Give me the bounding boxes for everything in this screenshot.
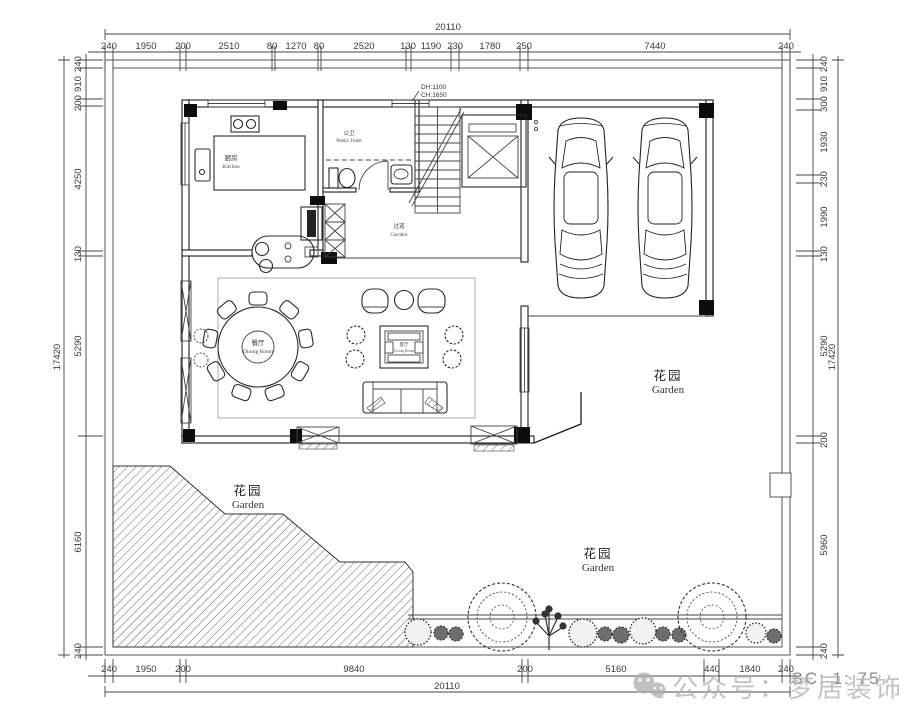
watermark: 公众号：梦居装饰 <box>634 673 899 704</box>
dim-right-seg-4: 230 <box>819 171 830 187</box>
stool <box>346 350 364 368</box>
living-label-zh: 客厅 <box>400 341 409 348</box>
dim-bottom-seg-3: 9840 <box>343 664 364 675</box>
dim-left-seg-0: 240 <box>73 56 84 72</box>
dim-top-seg-7: 2520 <box>353 41 374 52</box>
garden-label-bottom: 花园 Garden <box>582 546 615 574</box>
sill-plant <box>194 353 208 367</box>
dim-top-seg-10: 230 <box>447 41 463 52</box>
sofa-pillow <box>425 397 443 412</box>
car-2 <box>633 118 697 298</box>
sill-plant <box>194 329 208 343</box>
stool <box>443 350 461 368</box>
bar-stool <box>260 260 273 273</box>
dim-left-seg-6: 6160 <box>73 531 84 552</box>
armchair <box>362 289 388 313</box>
dim-right-seg-6: 130 <box>819 246 830 262</box>
dim-top-seg-12: 250 <box>516 41 532 52</box>
trees <box>405 583 781 651</box>
planting-bed <box>408 615 782 619</box>
toilet-bowl <box>339 169 355 188</box>
dim-left-seg-1: 910 <box>73 76 84 92</box>
dim-top-seg-4: 80 <box>267 41 278 52</box>
dim-left-seg-4: 130 <box>73 246 84 262</box>
armchair <box>418 289 445 313</box>
dim-right-seg-9: 5960 <box>819 534 830 555</box>
door-swing <box>359 161 388 190</box>
stool <box>445 326 463 344</box>
corridor-label-zh: 过道 <box>393 222 405 230</box>
kitchen-label-en: Kitchen <box>222 164 240 170</box>
garden-label-right: 花园 Garden <box>652 368 685 396</box>
bar-stool <box>256 243 269 256</box>
entry-chamfer-wall <box>534 392 581 443</box>
floor-plan-drawing: 20110 240 1950 200 2510 80 1270 80 2520 … <box>0 0 899 717</box>
dim-right-seg-5: 1990 <box>819 206 830 227</box>
dim-top-seg-2: 200 <box>175 41 191 52</box>
dim-left-seg-2: 200 <box>73 95 84 111</box>
leafy-tree <box>678 583 746 651</box>
garden-en: Garden <box>232 499 265 511</box>
dim-bottom-seg-0: 240 <box>101 664 117 675</box>
stove <box>231 116 259 132</box>
watermark-text: 公众号：梦居装饰 <box>672 673 899 703</box>
stool <box>347 326 365 344</box>
corridor: 过道 Corridor <box>390 222 408 238</box>
dining-living-hall: 餐厅 Dining Room 客厅 Living Room <box>194 278 475 418</box>
kitchen-sink <box>195 149 210 181</box>
dim-top-seg-11: 1780 <box>479 41 500 52</box>
note-dh: DH:1100 <box>421 84 447 91</box>
dim-top-seg-5: 1270 <box>285 41 306 52</box>
dim-right-seg-1: 910 <box>819 76 830 92</box>
dim-top-seg-1: 1950 <box>135 41 156 52</box>
kitchen-island <box>214 136 305 190</box>
leafy-tree <box>468 583 536 651</box>
windows <box>181 100 529 451</box>
dim-top-seg-13: 7440 <box>644 41 665 52</box>
dim-top-total: 20110 <box>435 22 461 33</box>
hinge-dot <box>534 127 537 130</box>
dining-label-en: Dining Room <box>243 349 274 355</box>
sofa-pillow <box>367 397 385 412</box>
garden-zh: 花园 <box>653 368 682 383</box>
dim-top-seg-9: 1190 <box>421 41 441 52</box>
dim-left-seg-3: 4250 <box>73 168 84 189</box>
car-1 <box>549 118 613 298</box>
hinge-dot <box>534 120 537 123</box>
dim-right-seg-2: 300 <box>819 96 830 112</box>
dimension-right: 17420 240 910 300 1930 230 1990 130 5290… <box>796 54 844 660</box>
dimension-left: 17420 240 910 200 4250 130 5290 6160 240 <box>52 54 103 660</box>
dim-bottom-seg-5: 5160 <box>605 664 626 675</box>
garden-zh: 花园 <box>583 546 612 561</box>
dim-top-seg-3: 2510 <box>218 41 239 52</box>
dining-set: 餐厅 Dining Room <box>194 292 314 402</box>
x-window <box>181 204 517 451</box>
dim-left-seg-7: 240 <box>73 643 84 659</box>
dim-top-seg-6: 80 <box>314 41 325 52</box>
dim-bottom-seg-4: 200 <box>517 664 533 675</box>
corridor-label-en: Corridor <box>390 233 408 238</box>
dining-label-zh: 餐厅 <box>252 338 266 347</box>
dim-top-seg-14: 240 <box>778 41 794 52</box>
dim-bottom-seg-2: 200 <box>175 664 191 675</box>
branched-tree <box>533 606 566 650</box>
public-toilet: 公卫 Public Toilet <box>326 130 413 190</box>
dim-bottom-seg-1: 1950 <box>135 664 156 675</box>
hatched-walkway <box>113 466 413 647</box>
gate-post <box>770 473 791 497</box>
dimension-top: 20110 240 1950 200 2510 80 1270 80 2520 … <box>88 22 801 71</box>
garden-en: Garden <box>582 562 615 574</box>
dim-top-seg-0: 240 <box>101 41 117 52</box>
dim-left-seg-5: 5290 <box>73 335 84 356</box>
dim-right-seg-8: 200 <box>819 432 830 448</box>
window-height-note: DH:1100 CH:1650 <box>412 84 447 101</box>
tea-table: 客厅 Living Room <box>380 326 428 368</box>
living-label-en: Living Room <box>394 349 414 353</box>
kitchen: 厨房 Kitchen <box>195 116 322 273</box>
toilet-label-zh: 公卫 <box>343 130 355 137</box>
garden-en: Garden <box>652 384 685 396</box>
toilet-label-en: Public Toilet <box>336 139 362 144</box>
floor-plan-page: 20110 240 1950 200 2510 80 1270 80 2520 … <box>0 0 899 717</box>
sofa <box>363 382 447 413</box>
dim-right-seg-10: 240 <box>819 643 830 659</box>
garden-label-left: 花园 Garden <box>232 483 265 511</box>
dim-left-total: 17420 <box>52 344 63 370</box>
dim-right-seg-0: 240 <box>819 56 830 72</box>
dim-right-seg-3: 1930 <box>819 131 830 152</box>
dim-bottom-total: 20110 <box>434 681 460 692</box>
kitchen-label-zh: 厨房 <box>225 153 238 162</box>
note-ch: CH:1650 <box>421 92 447 99</box>
side-table <box>395 291 414 310</box>
garage <box>549 118 697 298</box>
dim-top-seg-8: 130 <box>400 41 416 52</box>
living-set: 客厅 Living Room <box>346 289 463 413</box>
garden-zh: 花园 <box>233 483 262 498</box>
dim-right-seg-7: 5290 <box>819 335 830 356</box>
elevator <box>462 115 526 187</box>
